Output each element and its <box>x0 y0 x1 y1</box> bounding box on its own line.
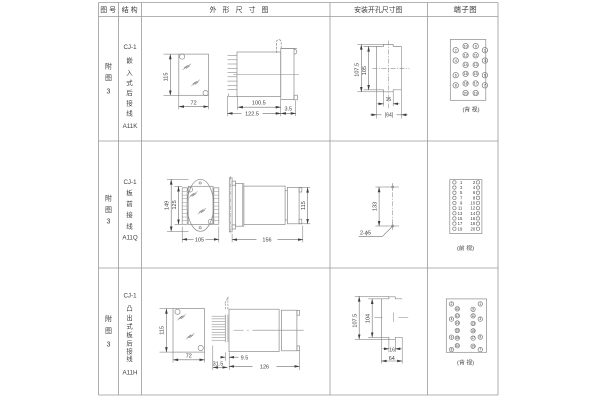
svg-text:CJ-1: CJ-1 <box>123 44 137 51</box>
svg-text:14: 14 <box>464 63 468 67</box>
svg-text:15: 15 <box>471 329 475 333</box>
svg-text:端子图: 端子图 <box>453 5 477 14</box>
svg-text:18: 18 <box>464 82 468 86</box>
svg-text:100.5: 100.5 <box>252 101 266 107</box>
svg-text:19: 19 <box>471 344 475 348</box>
svg-text:4: 4 <box>455 59 457 63</box>
svg-text:9: 9 <box>475 44 477 48</box>
svg-text:接: 接 <box>126 346 133 355</box>
svg-text:12: 12 <box>456 314 460 318</box>
svg-text:5: 5 <box>479 335 481 339</box>
svg-text:CJ-1: CJ-1 <box>123 179 137 186</box>
svg-text:嵌: 嵌 <box>126 56 133 64</box>
svg-text:104: 104 <box>366 314 372 323</box>
svg-text:7: 7 <box>479 348 481 352</box>
svg-text:3: 3 <box>479 317 481 321</box>
svg-text:4: 4 <box>451 317 453 321</box>
svg-text:133: 133 <box>372 202 378 211</box>
svg-text:3: 3 <box>484 59 486 63</box>
svg-text:[64]: [64] <box>385 113 394 119</box>
svg-text:8: 8 <box>455 84 457 88</box>
svg-text:入: 入 <box>126 70 133 77</box>
svg-text:式: 式 <box>126 78 133 87</box>
svg-text:16: 16 <box>464 72 468 76</box>
svg-text:16: 16 <box>456 329 460 333</box>
svg-text:72: 72 <box>191 100 197 106</box>
svg-text:13: 13 <box>471 322 475 326</box>
svg-text:115: 115 <box>164 73 170 82</box>
svg-text:安装开孔尺寸图: 安装开孔尺寸图 <box>354 5 402 14</box>
svg-text:接: 接 <box>126 210 133 219</box>
svg-text:11: 11 <box>474 54 478 58</box>
svg-text:结 构: 结 构 <box>122 5 138 14</box>
svg-text:3: 3 <box>107 342 111 349</box>
svg-text:(背 视): (背 视) <box>457 358 474 366</box>
svg-text:3: 3 <box>107 89 111 96</box>
svg-text:线: 线 <box>126 221 133 230</box>
svg-text:式: 式 <box>126 322 133 331</box>
svg-text:64: 64 <box>389 356 395 362</box>
svg-text:A11H: A11H <box>122 370 137 377</box>
svg-text:附: 附 <box>105 194 112 203</box>
svg-text:前: 前 <box>126 199 133 208</box>
svg-text:9.5: 9.5 <box>241 355 249 361</box>
svg-text:11: 11 <box>471 314 475 318</box>
svg-text:125: 125 <box>172 200 178 209</box>
svg-text:CJ-1: CJ-1 <box>123 292 137 299</box>
svg-text:外形尺寸图: 外形尺寸图 <box>210 5 275 14</box>
svg-text:17: 17 <box>474 82 478 86</box>
svg-text:107.5: 107.5 <box>355 63 361 77</box>
svg-text:10: 10 <box>456 307 460 311</box>
svg-text:14: 14 <box>456 321 460 325</box>
svg-text:19: 19 <box>458 226 463 231</box>
svg-text:156: 156 <box>262 238 271 244</box>
svg-text:16: 16 <box>389 348 395 354</box>
svg-text:板: 板 <box>126 188 133 197</box>
svg-text:18: 18 <box>456 336 460 340</box>
svg-text:3.5: 3.5 <box>284 107 292 113</box>
svg-text:17: 17 <box>471 336 475 340</box>
svg-text:126: 126 <box>260 365 269 371</box>
svg-text:149: 149 <box>165 201 171 210</box>
svg-text:附: 附 <box>105 314 112 323</box>
svg-text:31.5: 31.5 <box>213 361 224 367</box>
svg-text:1: 1 <box>479 302 481 306</box>
svg-text:122.5: 122.5 <box>245 112 259 118</box>
svg-text:115: 115 <box>301 201 307 210</box>
svg-text:12: 12 <box>464 54 468 58</box>
svg-text:接: 接 <box>126 98 133 107</box>
svg-text:(前 视): (前 视) <box>457 244 474 252</box>
svg-text:图: 图 <box>105 74 112 82</box>
svg-text:凸: 凸 <box>126 305 132 313</box>
svg-text:2: 2 <box>451 302 453 306</box>
svg-text:20: 20 <box>464 91 468 95</box>
svg-text:线: 线 <box>126 108 133 117</box>
svg-text:6: 6 <box>451 335 453 339</box>
svg-text:105: 105 <box>195 237 204 243</box>
svg-text:后: 后 <box>126 338 132 347</box>
svg-text:72: 72 <box>186 354 192 360</box>
svg-text:A11K: A11K <box>123 123 139 130</box>
svg-text:后: 后 <box>126 88 133 97</box>
svg-text:3: 3 <box>107 219 111 226</box>
svg-text:9: 9 <box>472 307 474 311</box>
svg-text:15: 15 <box>474 72 478 76</box>
svg-text:图: 图 <box>105 206 112 214</box>
svg-text:20: 20 <box>456 344 460 348</box>
svg-text:115: 115 <box>160 326 166 335</box>
svg-text:出: 出 <box>126 313 132 322</box>
svg-text:线: 线 <box>126 354 133 363</box>
svg-text:16: 16 <box>386 97 392 103</box>
svg-text:图 号: 图 号 <box>100 6 116 14</box>
svg-text:5: 5 <box>484 73 486 77</box>
svg-text:(背 视): (背 视) <box>462 105 479 113</box>
svg-text:1: 1 <box>484 48 486 52</box>
svg-text:附: 附 <box>105 62 112 71</box>
svg-text:8: 8 <box>451 348 453 352</box>
svg-text:105: 105 <box>362 66 368 75</box>
svg-text:19: 19 <box>474 91 478 95</box>
svg-text:20: 20 <box>471 226 476 231</box>
svg-text:图: 图 <box>105 327 112 335</box>
svg-text:2-ϕ5: 2-ϕ5 <box>360 231 371 237</box>
svg-text:板: 板 <box>126 330 133 339</box>
svg-text:6: 6 <box>455 73 457 77</box>
svg-text:2: 2 <box>455 48 457 52</box>
svg-text:107.5: 107.5 <box>353 314 359 328</box>
svg-text:10: 10 <box>464 44 468 48</box>
svg-text:A11Q: A11Q <box>122 234 138 241</box>
svg-text:7: 7 <box>484 84 486 88</box>
svg-text:13: 13 <box>474 63 478 67</box>
